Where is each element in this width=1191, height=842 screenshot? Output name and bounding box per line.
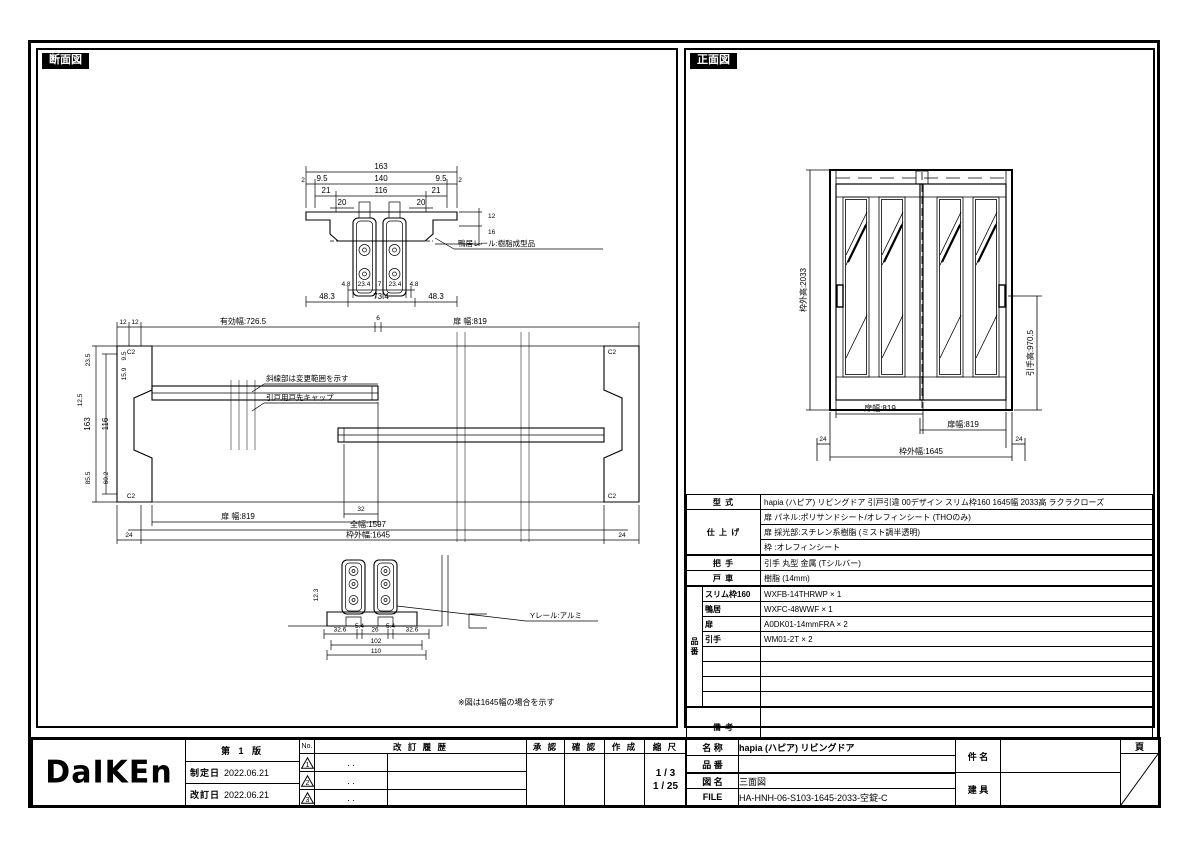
fitting-value — [1000, 772, 1121, 806]
enacted-date-cell: 制定日 2022.06.21 — [185, 761, 300, 784]
spec-part-name: 引手 — [703, 632, 761, 647]
section-view-title-text: 断面図 — [49, 54, 82, 66]
name-label: 名 称 — [685, 739, 739, 756]
check-cell — [564, 753, 605, 806]
spec-model-label: 型 式 — [687, 495, 761, 510]
spec-handle-value: 引手 丸型 金属 (Tシルバー) — [761, 555, 1153, 571]
rev-desc-cell — [387, 771, 527, 790]
dim-label: 12 — [131, 319, 139, 326]
rev-date-cell: . . — [314, 753, 388, 772]
dim-label: 24 — [819, 436, 827, 443]
dim-label: 15.9 — [121, 367, 128, 380]
subject-value — [1000, 739, 1121, 773]
part-no-value — [738, 755, 956, 773]
rev-desc-cell — [387, 753, 527, 772]
front-view-lines — [806, 170, 1042, 461]
approve-header: 承 認 — [526, 739, 565, 754]
chamfer-label: C2 — [608, 349, 617, 356]
head-rail-label: 鴨居レール:樹脂成型品 — [458, 238, 535, 248]
dim-label: 60.2 — [103, 471, 110, 484]
dim-label: 140 — [374, 174, 388, 183]
enacted-date-value: 2022.06.21 — [224, 768, 269, 778]
revised-date-cell: 改訂日 2022.06.21 — [185, 783, 300, 806]
front-view-panel: 正面図 — [684, 48, 1155, 728]
rev-no-header: No. — [299, 739, 315, 754]
rev-mark-number: 1 — [305, 762, 309, 769]
dim-label: 23.4 — [389, 281, 402, 288]
dim-label: 102 — [371, 638, 382, 645]
dim-label: 16 — [488, 229, 496, 236]
front-view-drawing: 枠外高:2033 引手高:970.5 扉幅:819 扉幅:819 24 24 枠… — [686, 50, 1153, 494]
dim-label: 24 — [618, 532, 626, 539]
page-diagonal-line — [1121, 754, 1158, 805]
spec-part-value: WXFB-14THRWP × 1 — [761, 586, 1153, 602]
dim-label: 枠外幅:1645 — [899, 446, 944, 456]
daiken-logo: DaIKEn — [32, 739, 186, 806]
check-header: 確 認 — [564, 739, 605, 754]
dim-label: 5.4 — [386, 623, 395, 630]
dim-label: 有効幅:726.5 — [220, 316, 267, 326]
page-cell — [1120, 753, 1159, 806]
front-view-title: 正面図 — [690, 53, 737, 69]
spec-part-name: 鴨居 — [703, 602, 761, 617]
plan-detail-lines — [92, 322, 639, 544]
plan-detail-dims: 12 12 有効幅:726.5 6 扉 幅:819 163 116 23.5 9… — [77, 315, 626, 540]
spec-roller-label: 戸 車 — [687, 571, 761, 587]
dim-label: 110 — [371, 648, 382, 655]
dim-label: 32.6 — [406, 627, 419, 634]
spec-part-value — [761, 662, 1153, 677]
spec-remarks-value — [761, 707, 1153, 728]
sill-detail-lines — [288, 555, 598, 660]
drawing-name-value: 三面図 — [738, 772, 956, 789]
drawing-note: ※図は1645幅の場合を示す — [458, 697, 555, 707]
create-cell — [604, 753, 645, 806]
dim-label: 9.5 — [316, 174, 328, 183]
title-block: DaIKEn 第 1 版 制定日 2022.06.21 改訂日 2022.06.… — [30, 737, 1161, 808]
spec-part-name — [703, 692, 761, 708]
dim-label: 扉 幅:819 — [453, 316, 487, 326]
dim-label: 枠外高:2033 — [798, 267, 808, 312]
spec-part-name — [703, 677, 761, 692]
dim-label: 116 — [101, 417, 110, 430]
sill-rail-label: Yレール:アルミ — [530, 611, 582, 620]
approve-cell — [526, 753, 565, 806]
dim-label: 26 — [371, 627, 379, 634]
dim-label: 12.3 — [313, 588, 320, 601]
dim-label: 7 — [378, 281, 382, 288]
dim-label: 48.3 — [319, 292, 335, 301]
dim-label: 2 — [301, 177, 305, 184]
spec-part-value — [761, 692, 1153, 708]
dim-label: 116 — [375, 186, 388, 195]
dim-label: 85.5 — [85, 471, 92, 484]
dim-label: 12.5 — [77, 393, 84, 406]
daiken-logo-text: DaIKEn — [45, 754, 172, 791]
dim-label: 枠外幅:1645 — [346, 530, 391, 540]
page-header: 頁 — [1120, 739, 1159, 754]
spec-part-value — [761, 647, 1153, 662]
spec-finish-row: 扉 採光部:スチレン系樹脂 (ミスト調半透明) — [761, 525, 1153, 540]
scale-header: 縮 尺 — [644, 739, 687, 754]
dim-label: 24 — [125, 532, 133, 539]
drawing-name-label: 図 名 — [685, 772, 739, 789]
head-detail-dims: 163 2 9.5 140 9.5 2 21 116 21 20 20 12 1… — [301, 162, 535, 301]
section-view-title: 断面図 — [42, 53, 89, 69]
subject-label: 件 名 — [955, 739, 1001, 773]
dim-label: 4.8 — [409, 281, 418, 288]
dim-label: 163 — [83, 417, 92, 431]
revised-date-label: 改訂日 — [190, 788, 220, 801]
spec-finish-label: 仕 上 げ — [687, 510, 761, 556]
dim-label: 2 — [458, 177, 462, 184]
spec-roller-value: 樹脂 (14mm) — [761, 571, 1153, 587]
spec-parts-label: 品 番 — [687, 586, 703, 707]
dim-label: 21 — [322, 186, 331, 195]
dim-label: 扉幅:819 — [947, 419, 979, 429]
chamfer-label: C2 — [608, 493, 617, 500]
dim-label: 20 — [417, 198, 426, 207]
name-value: hapia (ハピア) リビングドア — [738, 739, 956, 756]
rev-date-cell: . . — [314, 771, 388, 790]
spec-model-value: hapia (ハピア) リビングドア 引戸引違 00デザイン スリム枠160 1… — [761, 495, 1153, 510]
rev-mark-3: 3 — [299, 789, 315, 806]
drawing-sheet: 断面図 — [0, 0, 1191, 842]
dim-label: 32 — [357, 506, 365, 513]
dim-label: 引手高:970.5 — [1025, 329, 1035, 376]
cap-label: 引戸用戸先キャップ — [266, 392, 334, 402]
sill-detail-dims: Yレール:アルミ 12.3 32.6 5.4 26 5.4 32.6 102 1… — [313, 588, 582, 707]
dim-label: 20 — [338, 198, 347, 207]
spec-part-value: WM01-2T × 2 — [761, 632, 1153, 647]
file-value: HA-HNH-06-S103-1645-2033-空錠-C — [738, 788, 956, 806]
chamfer-label: C2 — [127, 493, 136, 500]
dim-label: 6 — [376, 315, 380, 322]
dim-label: 32.6 — [334, 627, 347, 634]
scale-value-2: 1 / 25 — [653, 780, 678, 793]
dim-label: 4.8 — [341, 281, 350, 288]
revised-date-value: 2022.06.21 — [224, 790, 269, 800]
dim-label: 23.5 — [85, 353, 92, 366]
edition-cell: 第 1 版 — [185, 739, 300, 762]
file-label: FILE — [685, 788, 739, 806]
section-view-drawing: 163 2 9.5 140 9.5 2 21 116 21 20 20 12 1… — [38, 50, 676, 726]
spec-handle-label: 把 手 — [687, 555, 761, 571]
dim-label: 扉幅:819 — [864, 403, 896, 413]
spec-part-name — [703, 662, 761, 677]
spec-finish-row: 枠 :オレフィンシート — [761, 540, 1153, 556]
rev-mark-number: 3 — [305, 797, 309, 804]
spec-part-name: 扉 — [703, 617, 761, 632]
rev-mark-number: 2 — [305, 780, 309, 787]
dim-label: 5.4 — [355, 623, 364, 630]
rev-mark-1: 1 — [299, 753, 315, 772]
spec-finish-row: 扉 パネル:ポリサンドシート/オレフィンシート (THOのみ) — [761, 510, 1153, 525]
dim-label: 12 — [119, 319, 127, 326]
fitting-label: 建 具 — [955, 772, 1001, 806]
dim-label: 12 — [488, 213, 496, 220]
create-header: 作 成 — [604, 739, 645, 754]
scale-value-1: 1 / 3 — [656, 767, 675, 780]
dim-label: 163 — [374, 162, 388, 171]
enacted-date-label: 制定日 — [190, 766, 220, 779]
spec-part-value: WXFC-48WWF × 1 — [761, 602, 1153, 617]
rev-history-header: 改 訂 履 歴 — [314, 739, 527, 754]
spec-table: 型 式 hapia (ハピア) リビングドア 引戸引違 00デザイン スリム枠1… — [686, 494, 1153, 748]
section-view-panel: 断面図 — [36, 48, 678, 728]
dim-label: 23.4 — [358, 281, 371, 288]
front-view-title-text: 正面図 — [697, 54, 730, 66]
rev-date-cell: . . — [314, 789, 388, 806]
chamfer-label: C2 — [127, 349, 136, 356]
scale-cell: 1 / 3 1 / 25 — [644, 753, 687, 806]
dim-label: 9.5 — [435, 174, 447, 183]
spec-part-value: A0DK01-14mmFRA × 2 — [761, 617, 1153, 632]
spec-part-name: スリム枠160 — [703, 586, 761, 602]
rev-mark-2: 2 — [299, 771, 315, 790]
dim-label: 48.3 — [428, 292, 444, 301]
rev-desc-cell — [387, 789, 527, 806]
dim-label: 21 — [432, 186, 441, 195]
spec-part-name — [703, 647, 761, 662]
head-detail-lines — [306, 166, 603, 307]
hatch-note-label: 斜線部は変更範囲を示す — [266, 373, 349, 383]
dim-label: 73.4 — [373, 292, 389, 301]
dim-label: 24 — [1015, 436, 1023, 443]
dim-label: 扉 幅:819 — [221, 511, 255, 521]
part-no-label: 品 番 — [685, 755, 739, 773]
dim-label: 全幅:1597 — [350, 519, 387, 529]
spec-part-value — [761, 677, 1153, 692]
